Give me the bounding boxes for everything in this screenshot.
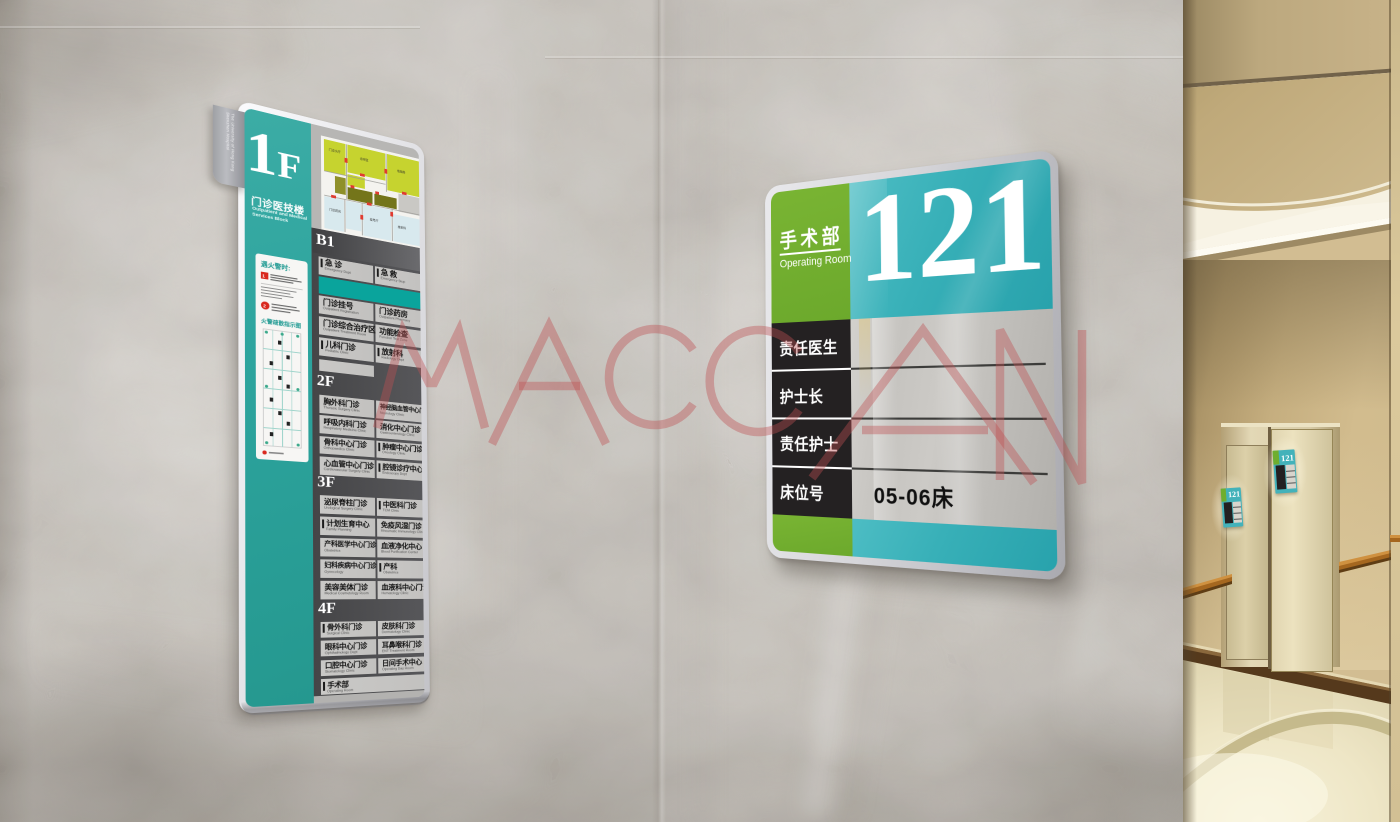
svg-text:1: 1 — [262, 274, 265, 280]
svg-text:2: 2 — [263, 304, 266, 310]
